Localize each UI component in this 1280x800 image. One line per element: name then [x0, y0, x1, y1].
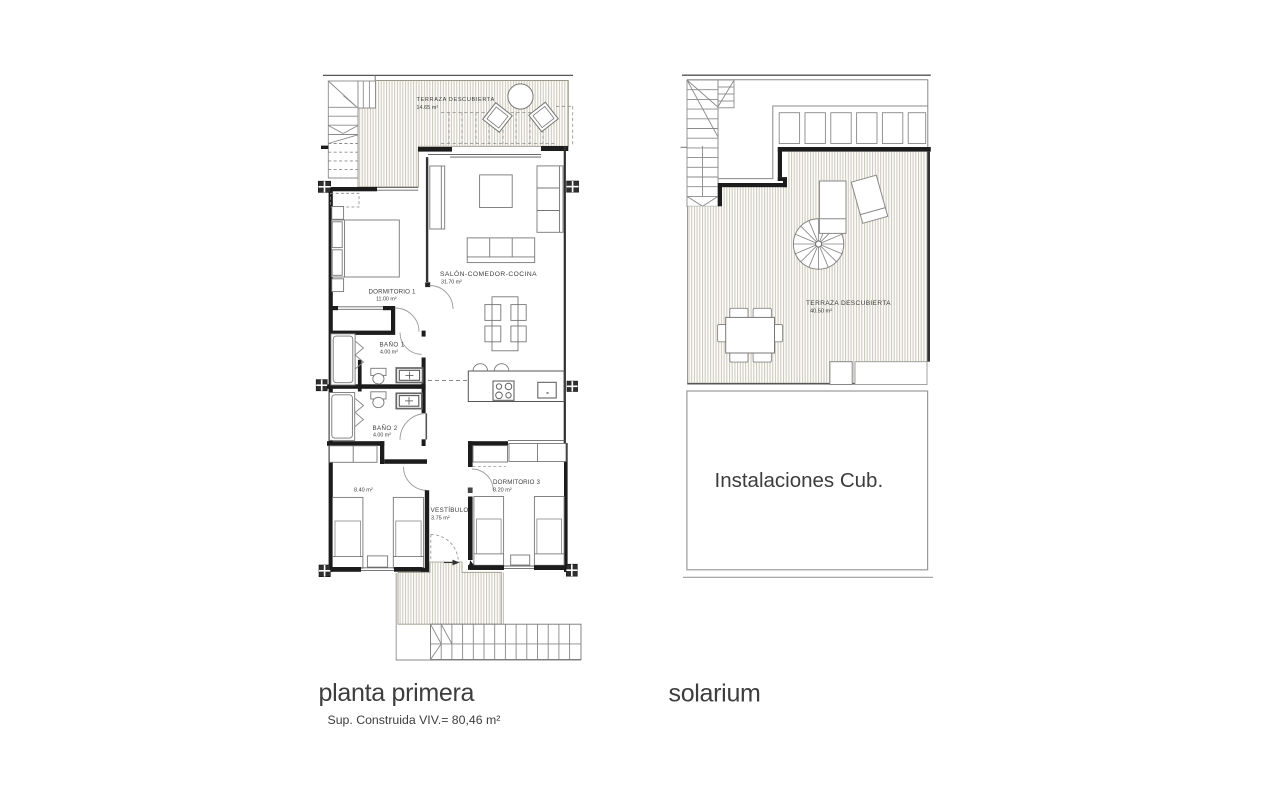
svg-text:14.65 m²: 14.65 m²: [417, 105, 439, 111]
svg-text:31.70 m²: 31.70 m²: [441, 280, 462, 286]
svg-text:DORMITORIO 3: DORMITORIO 3: [493, 479, 540, 486]
svg-text:TERRAZA DESCUBIERTA: TERRAZA DESCUBIERTA: [806, 300, 891, 307]
svg-text:8.40 m²: 8.40 m²: [354, 488, 373, 494]
svg-text:4.00 m²: 4.00 m²: [380, 349, 398, 355]
svg-text:VESTÍBULO: VESTÍBULO: [431, 505, 469, 514]
svg-text:solarium: solarium: [669, 680, 761, 708]
svg-text:40.50 m²: 40.50 m²: [810, 309, 832, 315]
svg-text:DORMITORIO 1: DORMITORIO 1: [369, 289, 416, 296]
svg-text:4.00 m²: 4.00 m²: [373, 433, 391, 439]
svg-text:TERRAZA DESCUBIERTA: TERRAZA DESCUBIERTA: [417, 97, 495, 103]
svg-text:BAÑO 1: BAÑO 1: [380, 342, 405, 349]
svg-text:3.75 m²: 3.75 m²: [431, 516, 450, 522]
svg-text:8.20 m²: 8.20 m²: [493, 488, 512, 494]
svg-text:11.00 m²: 11.00 m²: [376, 297, 397, 303]
svg-text:planta primera: planta primera: [319, 679, 475, 707]
svg-text:Instalaciones Cub.: Instalaciones Cub.: [715, 469, 884, 492]
svg-text:BAÑO 2: BAÑO 2: [373, 425, 398, 432]
svg-text:Sup. Construida VIV.= 80,46 m²: Sup. Construida VIV.= 80,46 m²: [328, 713, 501, 727]
svg-text:SALÓN-COMEDOR-COCINA: SALÓN-COMEDOR-COCINA: [440, 269, 537, 278]
